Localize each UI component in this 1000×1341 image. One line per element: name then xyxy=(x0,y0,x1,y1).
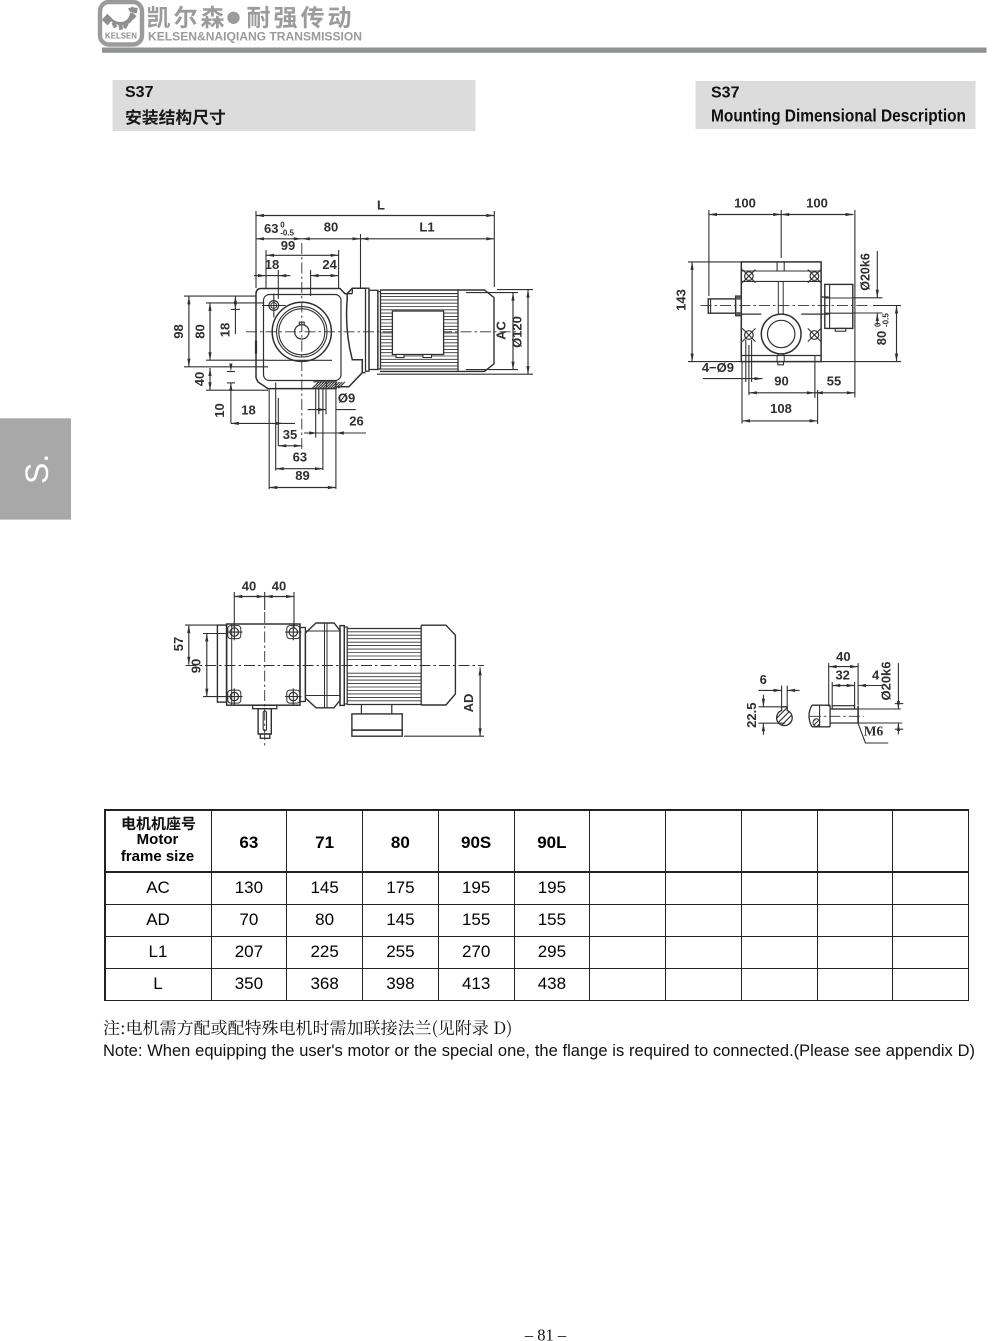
svg-text:S.: S. xyxy=(19,454,55,484)
svg-text:4−Ø9: 4−Ø9 xyxy=(702,360,734,375)
svg-text:AD: AD xyxy=(461,694,476,713)
svg-text:-0.5: -0.5 xyxy=(280,229,294,238)
svg-text:40: 40 xyxy=(242,579,256,594)
svg-text:55: 55 xyxy=(827,373,841,388)
svg-text:98: 98 xyxy=(171,324,186,338)
svg-text:S37: S37 xyxy=(711,85,740,102)
svg-text:100: 100 xyxy=(734,196,756,211)
svg-text:AC: AC xyxy=(494,321,509,340)
svg-text:Mounting Dimensional Descripti: Mounting Dimensional Description xyxy=(711,106,966,126)
svg-text:35: 35 xyxy=(283,427,297,442)
svg-text:KELSEN: KELSEN xyxy=(105,31,137,41)
svg-text:18: 18 xyxy=(241,403,255,418)
svg-text:Ø20k6: Ø20k6 xyxy=(858,253,872,291)
svg-text:Ø120: Ø120 xyxy=(510,316,525,348)
svg-text:89: 89 xyxy=(295,468,309,483)
svg-text:80: 80 xyxy=(193,324,208,338)
svg-text:100: 100 xyxy=(806,196,828,211)
svg-text:63: 63 xyxy=(293,449,307,464)
svg-text:80: 80 xyxy=(324,220,338,235)
svg-text:M6: M6 xyxy=(864,724,884,739)
svg-text:99: 99 xyxy=(281,238,295,253)
svg-text:32: 32 xyxy=(835,668,849,683)
svg-text:Ø9: Ø9 xyxy=(338,390,355,405)
svg-text:143: 143 xyxy=(674,289,689,311)
svg-text:6: 6 xyxy=(760,672,767,687)
svg-text:26: 26 xyxy=(349,414,363,429)
svg-text:L1: L1 xyxy=(419,220,434,235)
svg-text:63: 63 xyxy=(264,221,278,236)
svg-text:Ø20k6: Ø20k6 xyxy=(879,661,894,700)
svg-text:– 81 –: – 81 – xyxy=(524,1326,567,1341)
svg-text:18: 18 xyxy=(265,257,279,272)
svg-text:40: 40 xyxy=(272,579,286,594)
svg-text:40: 40 xyxy=(836,649,850,664)
svg-text:22.5: 22.5 xyxy=(744,703,759,728)
svg-text:S37: S37 xyxy=(125,84,154,101)
svg-text:18: 18 xyxy=(218,323,233,337)
svg-text:57: 57 xyxy=(171,637,186,651)
svg-text:-0.5: -0.5 xyxy=(881,313,890,327)
svg-text:L: L xyxy=(377,198,385,213)
svg-text:108: 108 xyxy=(770,401,792,416)
svg-text:KELSEN&NAIQIANG TRANSMISSION: KELSEN&NAIQIANG TRANSMISSION xyxy=(148,30,362,44)
svg-text:24: 24 xyxy=(322,257,337,272)
svg-text:40: 40 xyxy=(192,372,207,386)
svg-text:90: 90 xyxy=(188,659,203,673)
svg-text:90: 90 xyxy=(774,373,788,388)
svg-text:10: 10 xyxy=(212,403,227,417)
svg-text:80: 80 xyxy=(874,331,889,345)
